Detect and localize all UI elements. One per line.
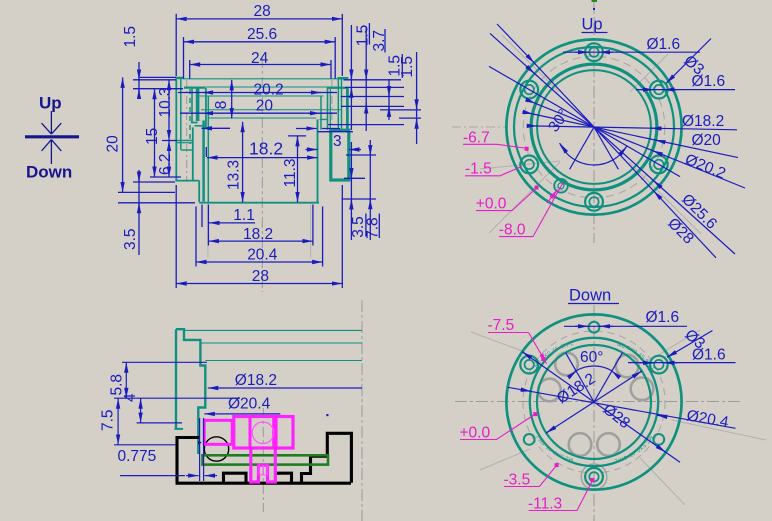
svg-text:Ø20: Ø20 — [692, 132, 722, 149]
svg-text:Up: Up — [39, 94, 62, 113]
svg-text:7.8: 7.8 — [364, 217, 381, 239]
svg-text:+0.0: +0.0 — [460, 425, 491, 442]
svg-text:18.2: 18.2 — [243, 226, 273, 243]
svg-text:-1.5: -1.5 — [465, 161, 492, 178]
svg-text:3: 3 — [333, 133, 342, 150]
svg-text:Up: Up — [582, 16, 603, 34]
svg-text:+0.0: +0.0 — [476, 196, 507, 213]
svg-text:1.5: 1.5 — [399, 56, 416, 78]
svg-text:3.5: 3.5 — [122, 228, 139, 250]
svg-text:18.2: 18.2 — [249, 139, 283, 159]
svg-text:28: 28 — [254, 3, 271, 20]
svg-text:25.6: 25.6 — [247, 26, 277, 43]
svg-text:0.775: 0.775 — [118, 448, 157, 465]
svg-text:20: 20 — [256, 98, 274, 115]
svg-text:13.3: 13.3 — [226, 160, 243, 190]
svg-text:3.7: 3.7 — [371, 30, 388, 52]
svg-text:1.1: 1.1 — [233, 207, 255, 224]
svg-text:24: 24 — [251, 50, 269, 67]
svg-text:6.2: 6.2 — [157, 153, 174, 175]
svg-text:20.2: 20.2 — [254, 81, 284, 98]
svg-text:4: 4 — [122, 393, 139, 402]
svg-text:60°: 60° — [580, 349, 603, 366]
svg-text:Ø1.6: Ø1.6 — [692, 347, 726, 364]
svg-text:1.5: 1.5 — [122, 26, 139, 48]
svg-text:7.5: 7.5 — [100, 409, 117, 431]
svg-text:5.8: 5.8 — [109, 374, 126, 396]
svg-text:20: 20 — [104, 135, 121, 153]
svg-text:Ø1.6: Ø1.6 — [692, 73, 726, 90]
svg-text:Down: Down — [26, 163, 72, 182]
svg-text:Down: Down — [569, 287, 611, 305]
svg-text:1.5: 1.5 — [355, 25, 372, 47]
svg-text:Ø18.2: Ø18.2 — [682, 113, 724, 130]
svg-text:-8.0: -8.0 — [499, 222, 526, 239]
svg-text:Ø20.4: Ø20.4 — [228, 396, 271, 413]
svg-text:11.3: 11.3 — [282, 158, 299, 187]
svg-text:Ø1.6: Ø1.6 — [647, 36, 681, 53]
svg-text:-3.5: -3.5 — [504, 472, 531, 489]
svg-text:Ø1.6: Ø1.6 — [646, 309, 680, 326]
svg-text:15: 15 — [144, 128, 161, 145]
svg-text:8: 8 — [213, 101, 230, 110]
svg-text:-7.5: -7.5 — [488, 317, 515, 334]
svg-text:-11.3: -11.3 — [528, 496, 562, 513]
svg-text:-6.7: -6.7 — [463, 129, 490, 146]
svg-text:Ø18.2: Ø18.2 — [235, 372, 277, 389]
svg-text:28: 28 — [252, 268, 269, 285]
svg-text:10.3: 10.3 — [157, 87, 174, 117]
svg-text:20.4: 20.4 — [247, 247, 278, 264]
